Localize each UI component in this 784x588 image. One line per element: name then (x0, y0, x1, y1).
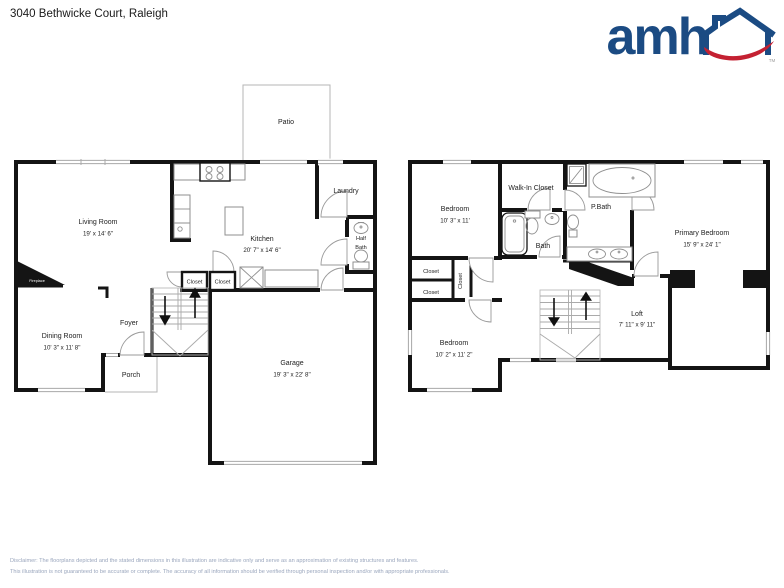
room-label-bedroom-bottom: Bedroom (440, 340, 469, 347)
double-vanity-icon (567, 247, 632, 261)
logo-wordmark: amh (607, 8, 708, 64)
water-heater-icon (240, 267, 263, 288)
sink-icon (354, 223, 368, 234)
room-label-patio: Patio (278, 119, 294, 126)
hall-door (213, 251, 234, 272)
room-label-closet-a2: Closet (423, 269, 439, 275)
bedroom-bottom-window (427, 387, 472, 394)
room-label-closet-b: Closet (215, 280, 231, 286)
sink-icon-2 (545, 214, 559, 225)
garage-entry-door (320, 268, 344, 293)
room-label-closet-b2: Closet (423, 290, 439, 296)
room-label-garage: Garage (280, 360, 303, 367)
amh-logo: amh TM (605, 4, 777, 64)
primary-bedroom-window-2 (741, 159, 763, 166)
room-label-closet-a: Closet (187, 280, 203, 286)
room-label-primary-bath: P.Bath (591, 204, 611, 211)
room-dims-dining-room: 10' 3" x 11' 8" (44, 345, 81, 352)
staircase-first-floor (152, 288, 208, 356)
disclaimer: Disclaimer: The floorplans depicted and … (10, 556, 450, 577)
toilet-icon (353, 250, 369, 269)
half-bath-door (321, 237, 350, 265)
room-label-porch: Porch (122, 372, 140, 379)
closet-b: Closet (210, 272, 235, 290)
primary-bath-door (562, 190, 585, 211)
bathtub-oval-icon (589, 164, 655, 197)
logo-tm: TM (769, 58, 776, 63)
room-dims-living-room: 19' x 14' 6" (83, 231, 113, 238)
room-dims-kitchen: 20' 7" x 14' 6" (243, 247, 280, 254)
room-label-half-bath-2: Bath (355, 245, 367, 251)
address-title: 3040 Bethwicke Court, Raleigh (10, 8, 168, 20)
room-label-dining-room: Dining Room (42, 333, 83, 340)
room-label-foyer: Foyer (120, 320, 139, 327)
laundry-window (318, 159, 343, 166)
room-label-walk-in-closet: Walk-In Closet (508, 185, 553, 192)
first-floor-plan: Fireplace (10, 82, 382, 474)
dining-room-window (38, 387, 85, 394)
refrigerator-icon (174, 195, 190, 223)
kitchen-sink-icon (174, 223, 190, 238)
second-floor-plan: Bedroom 10' 3" x 11' Walk-In Closet P.Ba… (405, 152, 773, 398)
room-label-half-bath-1: Half (356, 236, 366, 242)
room-dims-bedroom-top: 10' 3" x 11' (440, 218, 470, 225)
room-label-primary-bedroom: Primary Bedroom (675, 230, 730, 237)
laundry-door (319, 191, 347, 220)
room-label-kitchen: Kitchen (250, 236, 273, 243)
closet-door (167, 272, 182, 287)
fireplace-icon: Fireplace (15, 260, 65, 285)
staircase-second-floor (540, 290, 600, 360)
front-door-sidelite (106, 352, 118, 358)
room-label-laundry: Laundry (333, 188, 359, 195)
patio-sliding-door (260, 159, 307, 166)
bedroom-top-window (443, 159, 471, 166)
primary-right-window (765, 332, 772, 355)
room-label-bedroom-top: Bedroom (441, 206, 470, 213)
stairs-up-arrow-icon (191, 289, 200, 318)
floorplan-page: 3040 Bethwicke Court, Raleigh amh TM (0, 0, 784, 588)
stairs-down-arrow-icon-2 (550, 298, 559, 325)
front-door (120, 332, 144, 358)
shower-icon (567, 164, 586, 186)
room-dims-garage: 19' 3" x 22' 8" (273, 372, 310, 379)
room-label-living-room: Living Room (79, 219, 118, 226)
garage-door (224, 459, 362, 466)
counter (265, 270, 318, 287)
bedroom-bottom-door (465, 297, 492, 322)
stove-icon (200, 163, 230, 181)
hall-window-1 (510, 357, 531, 364)
primary-bedroom-door (634, 252, 660, 279)
room-dims-bedroom-bottom: 10' 2" x 11' 2" (436, 352, 473, 359)
room-label-bath: Bath (536, 243, 551, 250)
disclaimer-line-2: This illustration is not guaranteed to b… (10, 567, 450, 578)
kitchen-island (225, 207, 243, 235)
bathtub-icon (502, 213, 527, 255)
stairs-up-arrow-icon-2 (582, 293, 591, 320)
disclaimer-line-1: Disclaimer: The floorplans depicted and … (10, 556, 450, 567)
room-label-fireplace: Fireplace (29, 279, 45, 283)
closet-a: Closet (182, 272, 207, 290)
logo-swoosh (704, 41, 774, 60)
room-dims-loft: 7' 11" x 9' 11" (619, 322, 655, 329)
room-label-closet-c2: Closet (458, 273, 464, 289)
bedroom-bottom-left-window (407, 330, 414, 355)
room-label-loft: Loft (631, 311, 643, 318)
primary-bedroom-window-1 (684, 159, 723, 166)
room-dims-primary-bedroom: 15' 9" x 24' 1" (683, 242, 720, 249)
living-room-window (56, 159, 130, 166)
pedestal-sink-icon (568, 215, 579, 237)
